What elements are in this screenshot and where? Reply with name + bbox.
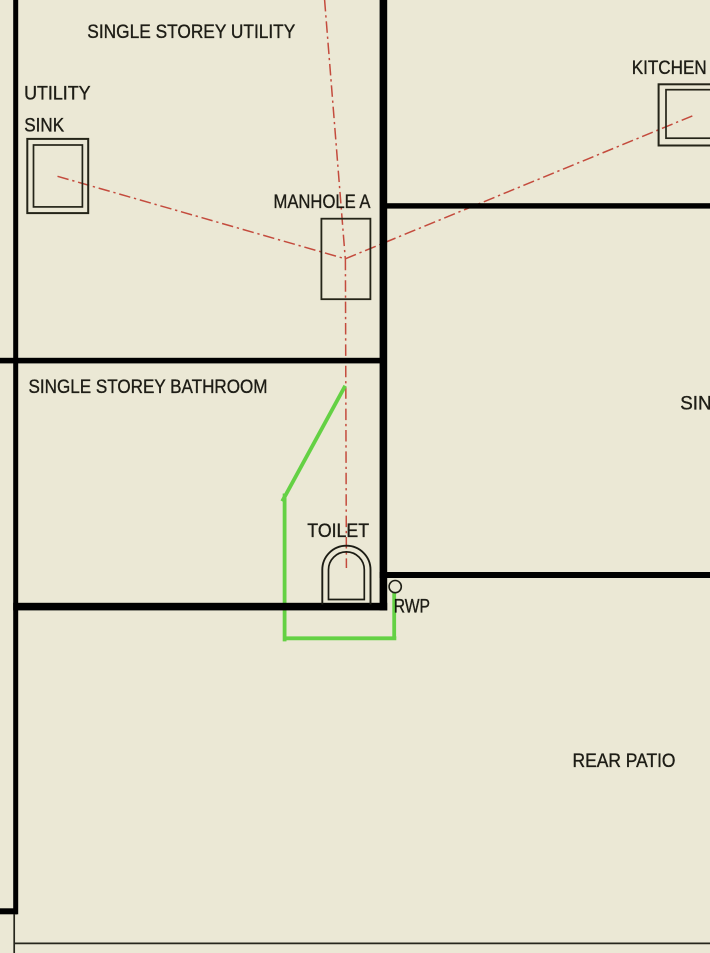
svg-text:TOILET: TOILET bbox=[307, 520, 369, 542]
svg-text:SINGLE STOREY BATHROOM: SINGLE STOREY BATHROOM bbox=[29, 376, 268, 398]
svg-text:UTILITY: UTILITY bbox=[24, 82, 91, 104]
svg-text:KITCHEN: KITCHEN bbox=[632, 57, 707, 79]
svg-text:RWP: RWP bbox=[394, 596, 430, 618]
svg-text:SINGLE: SINGLE bbox=[680, 393, 710, 415]
svg-text:MANHOLE A: MANHOLE A bbox=[274, 191, 371, 213]
svg-text:SINGLE STOREY UTILITY: SINGLE STOREY UTILITY bbox=[87, 21, 295, 43]
svg-text:SINK: SINK bbox=[24, 114, 64, 136]
svg-text:REAR PATIO: REAR PATIO bbox=[573, 750, 676, 772]
